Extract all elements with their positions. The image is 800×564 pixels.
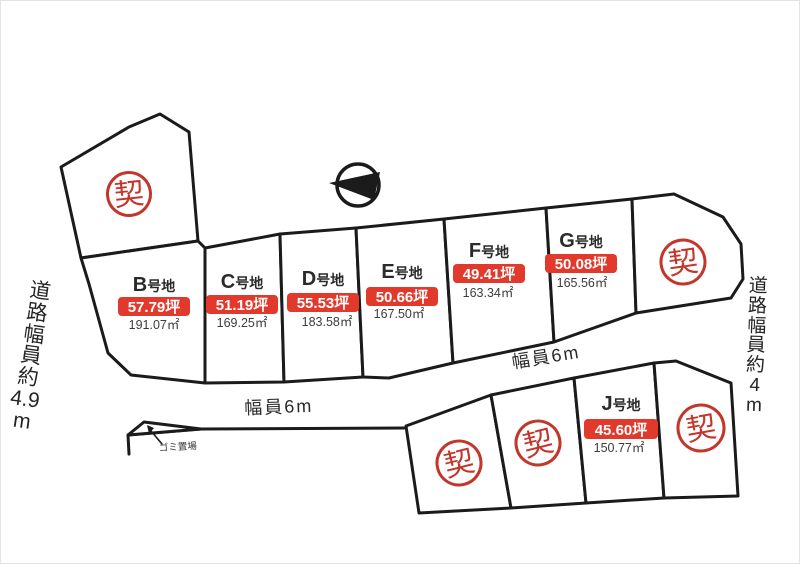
plot-f-area: 163.34㎡ — [463, 286, 514, 300]
plot-c-area: 169.25㎡ — [217, 316, 268, 330]
plot-d-tsubo: 55.53坪 — [297, 295, 350, 312]
plot-j-tsubo: 45.60坪 — [595, 422, 648, 439]
plot-d-area: 183.58㎡ — [302, 315, 353, 329]
site-plan-drawing: B号地 57.79坪 191.07㎡ C号地 51.19坪 169.25㎡ D号… — [1, 1, 800, 564]
plot-g-area: 165.56㎡ — [557, 276, 608, 290]
land-plot-site-map: B号地 57.79坪 191.07㎡ C号地 51.19坪 169.25㎡ D号… — [0, 0, 800, 564]
plot-e-area: 167.50㎡ — [374, 307, 425, 321]
plot-b-tsubo: 57.79坪 — [128, 299, 181, 316]
road-width-label-lower: 幅員6m — [244, 396, 314, 418]
plot-c-tsubo: 51.19坪 — [216, 297, 269, 314]
plot-g-name: G号地 — [559, 230, 603, 252]
svg-text:契: 契 — [666, 245, 700, 282]
plot-g-tsubo: 50.08坪 — [555, 256, 608, 273]
plot-f-tsubo: 49.41坪 — [463, 266, 516, 283]
north-arrow-icon — [329, 164, 380, 206]
plot-j-name: J号地 — [601, 393, 640, 415]
plot-b-name: B号地 — [133, 274, 175, 296]
garbage-area-label: ゴミ置場 — [159, 440, 198, 454]
plot-e-name: E号地 — [381, 261, 422, 283]
svg-text:契: 契 — [684, 410, 719, 448]
plot-f-name: F号地 — [469, 240, 509, 262]
svg-text:契: 契 — [112, 177, 145, 213]
plot-e-tsubo: 50.66坪 — [376, 289, 429, 306]
plot-c-name: C号地 — [221, 271, 263, 293]
plot-d-name: D号地 — [302, 268, 344, 290]
plot-b-area: 191.07㎡ — [129, 318, 180, 332]
plot-j-area: 150.77㎡ — [594, 441, 645, 455]
garbage-area-shape — [128, 422, 201, 435]
